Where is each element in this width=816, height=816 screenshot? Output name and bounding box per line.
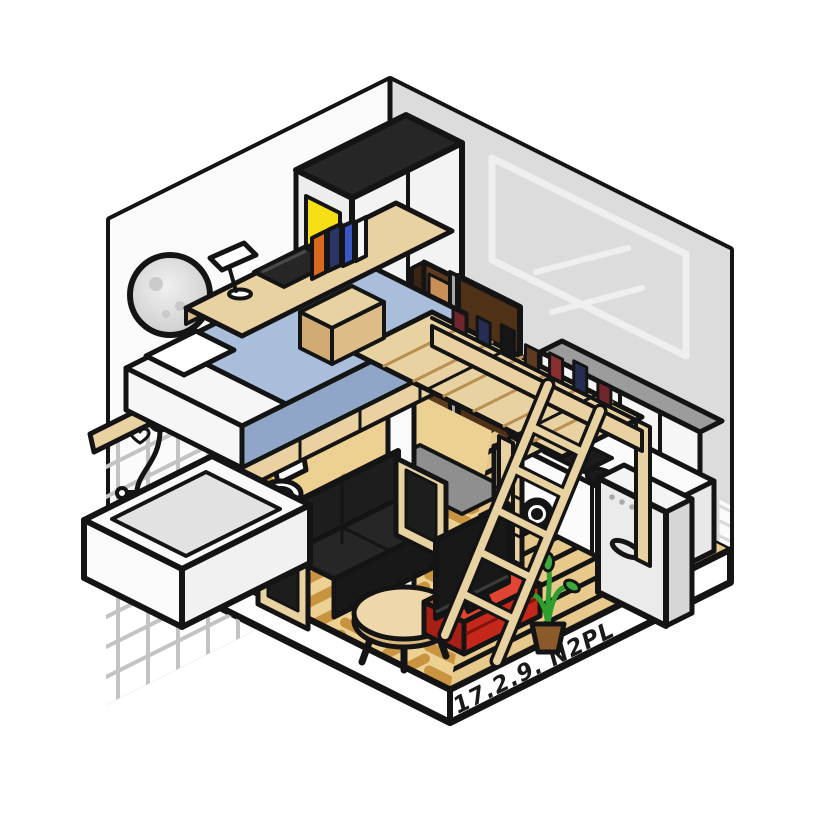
- illustration-canvas: 17.2.9. N2PL: [0, 0, 816, 816]
- plant-pot: [532, 624, 564, 652]
- moon-decal: [130, 255, 210, 335]
